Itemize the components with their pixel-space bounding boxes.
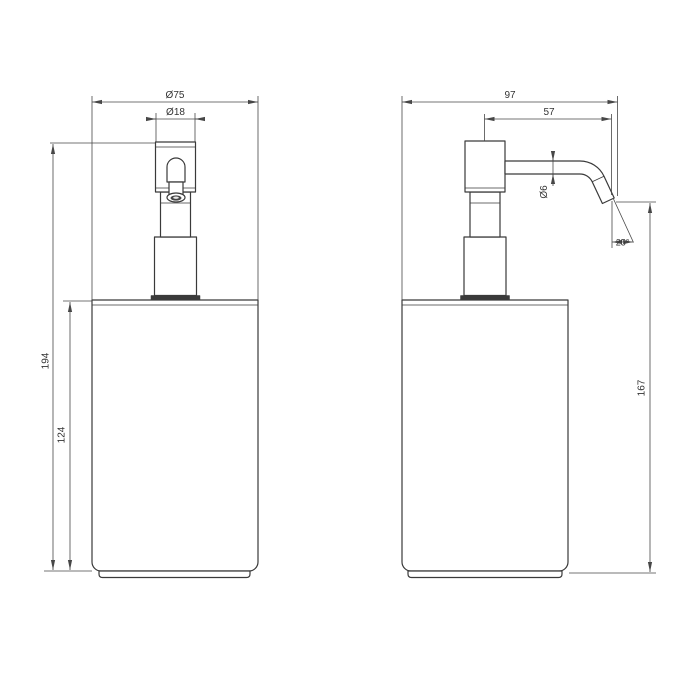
front-view: Ø75 Ø18 194 124 bbox=[41, 90, 259, 578]
technical-drawing-page: Ø75 Ø18 194 124 bbox=[0, 0, 700, 700]
dim-height-194-label: 194 bbox=[41, 352, 52, 369]
dim-dia-18: Ø18 bbox=[147, 107, 204, 142]
side-view: 97 57 Ø6 25° 167 bbox=[402, 90, 656, 578]
dim-height-167-label: 167 bbox=[637, 379, 648, 396]
dim-reach-57-label: 57 bbox=[543, 107, 555, 118]
spout-axis-line bbox=[614, 199, 634, 243]
front-base bbox=[99, 571, 250, 578]
front-spout-outlet-inner bbox=[173, 197, 179, 199]
dim-height-124: 124 bbox=[57, 301, 93, 570]
side-collar bbox=[464, 237, 506, 296]
side-body bbox=[402, 300, 568, 571]
side-spout-tube bbox=[505, 161, 614, 204]
side-base bbox=[408, 571, 562, 578]
side-pump-head bbox=[465, 141, 505, 192]
dim-height-167: 167 bbox=[569, 202, 656, 573]
front-spout bbox=[167, 158, 185, 202]
dim-dia-6: Ø6 bbox=[539, 152, 553, 199]
dim-height-124-label: 124 bbox=[57, 426, 68, 443]
dim-dia-18-label: Ø18 bbox=[166, 107, 185, 118]
dim-angle-25-label: 25° bbox=[616, 238, 630, 248]
dim-angle-25: 25° bbox=[612, 199, 634, 248]
dim-dia-6-label: Ø6 bbox=[539, 185, 550, 199]
dim-depth-97-label: 97 bbox=[504, 90, 516, 101]
front-spout-tube bbox=[167, 158, 185, 182]
front-flange bbox=[151, 296, 200, 301]
side-neck bbox=[470, 192, 500, 237]
soap-dispenser-technical-drawing: Ø75 Ø18 194 124 bbox=[0, 0, 700, 700]
side-spout bbox=[505, 161, 614, 204]
front-body bbox=[92, 300, 258, 571]
side-flange bbox=[461, 296, 510, 301]
front-collar bbox=[155, 237, 197, 296]
dim-depth-97: 97 bbox=[402, 90, 618, 300]
dim-dia-75-label: Ø75 bbox=[166, 90, 185, 101]
